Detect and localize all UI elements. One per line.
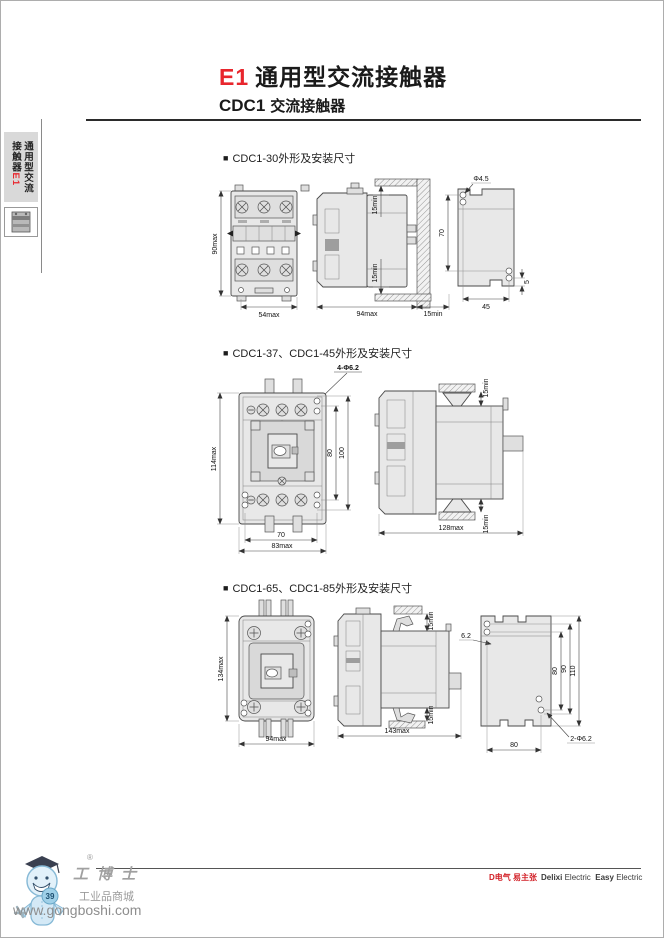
chapter-tab: 通用型交流接触器E1: [4, 132, 38, 202]
dim-bottom-clearance: 15min: [483, 514, 490, 533]
cdc1-37-front-view: 114max 80 100 70 83max: [211, 379, 351, 554]
subtitle-text: 交流接触器: [270, 98, 345, 115]
dim-depth: 143max: [385, 728, 410, 735]
dim-depth: 128max: [439, 525, 464, 532]
dim-front-width: 83max: [271, 543, 293, 550]
contactor-thumbnail-icon: [7, 209, 35, 235]
cdc1-65-side-view: 15min 15min 143max: [334, 606, 461, 739]
product-thumbnail: [4, 207, 38, 237]
catalog-page: E1通用型交流接触器 CDC1交流接触器 通用型交流接触器E1 ■CDC1-30…: [0, 0, 664, 938]
cdc1-37-side-view: 15min 15min 128max: [375, 378, 523, 536]
dim-plate-slot: 6.2: [461, 633, 471, 640]
section1-heading-text: CDC1-30外形及安装尺寸: [232, 153, 355, 165]
tab-model: E1: [10, 172, 21, 186]
tab-line1: 通用型交流: [22, 141, 33, 194]
dim-front-width: 94max: [265, 736, 287, 743]
cdc1-65-85-drawing: 134max 94max 15min: [151, 591, 611, 776]
dim-depth: 94max: [356, 311, 378, 318]
page-title-text: 通用型交流接触器: [255, 64, 447, 90]
page-subtitle: CDC1交流接触器: [219, 95, 345, 116]
registered-mark: ®: [87, 853, 93, 862]
page-title-model: E1: [219, 64, 249, 90]
tab-line2: 接触器: [10, 141, 21, 173]
dim-bottom-clearance: 15min: [372, 263, 379, 282]
mounting-hole-note: 4-Φ6.2: [321, 365, 362, 398]
brand-en-2: Electric: [565, 873, 591, 882]
dim-top-clearance: 15min: [483, 378, 490, 397]
dim-outer-pitch-v: 100: [339, 447, 346, 459]
dim-side-clearance: 15min: [423, 311, 442, 318]
cdc1-30-side-view: 15min 15min 94max 15min: [313, 179, 449, 318]
dim-front-height: 114max: [211, 446, 218, 471]
header-divider: [86, 119, 641, 121]
dim-front-height: 134max: [218, 656, 225, 681]
dim-front-width: 54max: [258, 312, 280, 319]
dim-note: 4-Φ6.2: [337, 365, 359, 372]
brand-en-1: Delixi: [541, 873, 562, 882]
page-title: E1通用型交流接触器: [219, 58, 447, 92]
cdc1-65-mounting-view: 6.2 80 90 110 2-Φ6.2 80: [459, 616, 595, 753]
cdc1-37-45-drawing: 4-Φ6.2: [151, 356, 571, 561]
dim-plate-edge: 5: [524, 280, 531, 284]
dim-hole-pitch-v: 80: [327, 449, 334, 457]
cdc1-65-front-view: 134max 94max: [218, 600, 314, 747]
cdc1-30-mounting-view: Φ4.5 70 45 5: [439, 176, 531, 311]
brand-footer: D电气 易主张Delixi Electric Easy Electric: [489, 872, 619, 883]
dim-pitch-b: 90: [561, 665, 568, 673]
brand-en-4: Electric: [616, 873, 642, 882]
brand-en-3: Easy: [595, 873, 614, 882]
dim-hole-pitch-h: 70: [277, 532, 285, 539]
section1-heading: ■CDC1-30外形及安装尺寸: [223, 150, 355, 166]
chapter-tab-label: 通用型交流接触器E1: [9, 141, 33, 194]
page-number: 39: [46, 892, 55, 901]
bullet-icon: ■: [223, 153, 228, 163]
logo-title: 工博士: [73, 863, 145, 884]
dim-plate-holes: 2-Φ6.2: [570, 736, 592, 743]
subtitle-model: CDC1: [219, 96, 265, 115]
left-margin-rule: [41, 119, 42, 273]
logo-url: www.gongboshi.com: [13, 902, 141, 918]
dim-pitch-a: 80: [552, 667, 559, 675]
footer-rule: [96, 868, 641, 869]
dim-plate-hole: Φ4.5: [473, 176, 488, 183]
dim-plate-width: 80: [510, 742, 518, 749]
dim-bottom-clearance: 15min: [428, 705, 435, 724]
dim-plate-pitch-h: 45: [482, 304, 490, 311]
dim-top-clearance: 15min: [428, 611, 435, 630]
dim-front-height: 90max: [212, 233, 219, 255]
dim-top-clearance: 15min: [372, 195, 379, 214]
dim-pitch-c: 110: [570, 665, 577, 676]
brand-cn: D电气 易主张: [489, 873, 537, 882]
cdc1-30-front-view: 90max 54max: [212, 185, 309, 319]
dim-plate-pitch-v: 70: [439, 229, 446, 237]
cdc1-30-drawing: 90max 54max 15min 15min: [151, 169, 551, 321]
